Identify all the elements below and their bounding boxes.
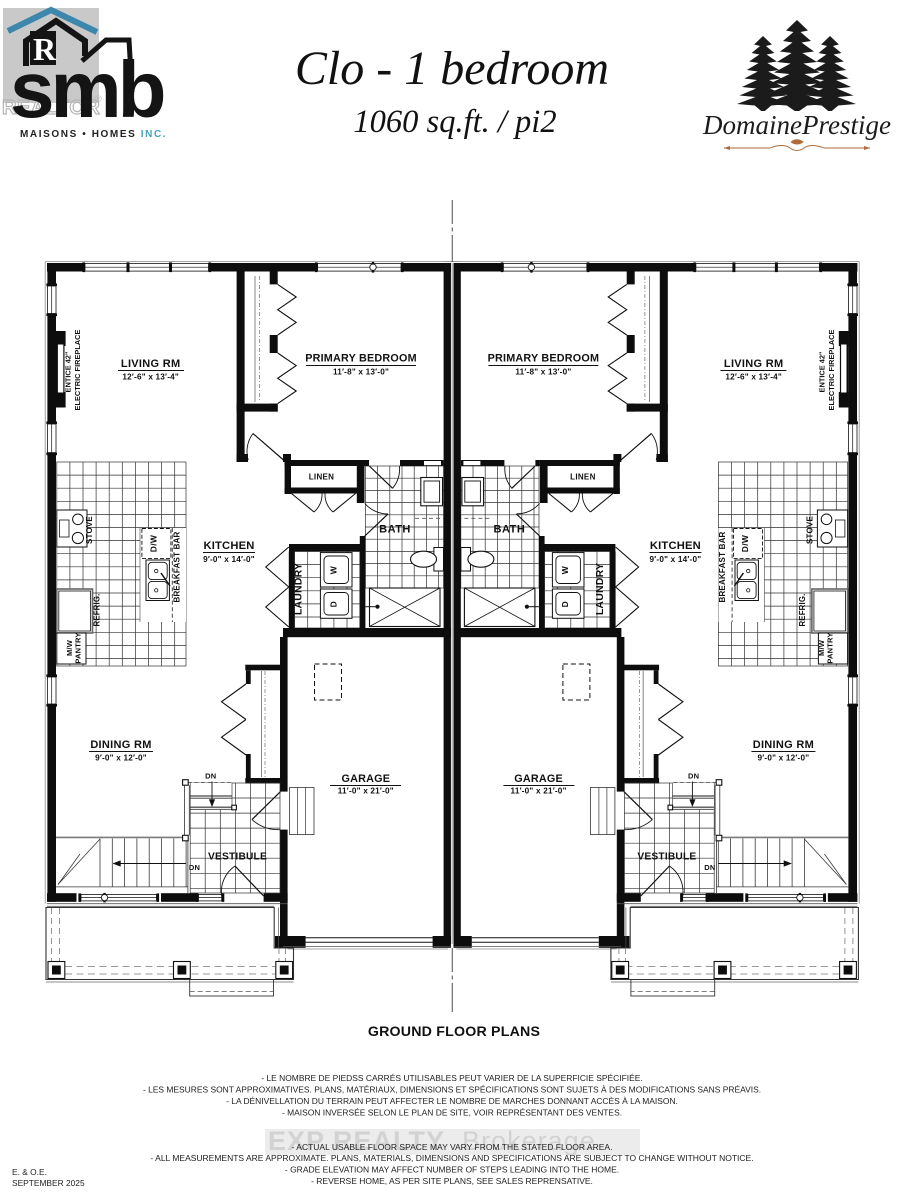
svg-text:MAISONS • HOMES INC.: MAISONS • HOMES INC. — [20, 129, 167, 140]
svg-text:DINING RM: DINING RM — [753, 739, 814, 751]
svg-text:11′-0" x 21′-0": 11′-0" x 21′-0" — [511, 787, 567, 796]
svg-text:D/W: D/W — [740, 534, 750, 552]
svg-text:STOVE: STOVE — [85, 516, 94, 544]
svg-text:- ACTUAL USABLE FLOOR SPACE MA: - ACTUAL USABLE FLOOR SPACE MAY VARY FRO… — [292, 1142, 613, 1152]
svg-text:11′-0" x 21′-0": 11′-0" x 21′-0" — [338, 787, 394, 796]
svg-text:KITCHEN: KITCHEN — [203, 540, 254, 552]
svg-text:9′-0" x 12′-0": 9′-0" x 12′-0" — [95, 754, 147, 763]
svg-text:VESTIBULE: VESTIBULE — [637, 852, 696, 863]
svg-text:VESTIBULE: VESTIBULE — [208, 852, 267, 863]
svg-text:GARAGE: GARAGE — [342, 773, 391, 785]
svg-text:DINING RM: DINING RM — [90, 739, 151, 751]
svg-text:- LES MESURES SONT APPROXIMATI: - LES MESURES SONT APPROXIMATIVES. PLANS… — [143, 1085, 761, 1095]
svg-text:LINEN: LINEN — [309, 473, 335, 482]
svg-text:BREAKFAST BAR: BREAKFAST BAR — [173, 531, 182, 602]
svg-text:KITCHEN: KITCHEN — [650, 540, 701, 552]
svg-text:REFRIG.: REFRIG. — [93, 593, 102, 626]
svg-text:LINEN: LINEN — [570, 473, 596, 482]
svg-text:STOVE: STOVE — [805, 516, 814, 544]
svg-text:GROUND FLOOR PLANS: GROUND FLOOR PLANS — [368, 1024, 540, 1040]
svg-text:9′-0" x 14′-0": 9′-0" x 14′-0" — [649, 555, 701, 564]
svg-text:PRIMARY BEDROOM: PRIMARY BEDROOM — [305, 353, 417, 365]
svg-text:DN: DN — [205, 772, 216, 781]
svg-text:DN: DN — [189, 863, 200, 872]
svg-text:D: D — [329, 601, 339, 608]
svg-text:GARAGE: GARAGE — [514, 773, 563, 785]
svg-text:D: D — [560, 601, 570, 608]
svg-text:LIVING RM: LIVING RM — [121, 358, 181, 370]
svg-text:PANTRY: PANTRY — [825, 632, 834, 663]
svg-text:smb: smb — [10, 45, 164, 134]
svg-text:SEPTEMBER 2025: SEPTEMBER 2025 — [12, 1178, 85, 1188]
svg-text:LAUNDRY: LAUNDRY — [594, 563, 606, 615]
svg-text:LAUNDRY: LAUNDRY — [293, 563, 305, 615]
svg-text:W: W — [329, 565, 339, 574]
svg-text:1060 sq.ft. / pi2: 1060 sq.ft. / pi2 — [353, 104, 556, 140]
svg-text:DomainePrestige: DomainePrestige — [702, 110, 891, 140]
svg-text:11′-8" x 13′-0": 11′-8" x 13′-0" — [333, 368, 389, 377]
svg-text:- ALL MEASUREMENTS ARE APPROXI: - ALL MEASUREMENTS ARE APPROXIMATE. PLAN… — [150, 1153, 753, 1163]
svg-text:ENTICE 42": ENTICE 42" — [817, 351, 826, 392]
svg-text:ENTICE 42": ENTICE 42" — [64, 351, 73, 392]
svg-text:9′-0" x 12′-0": 9′-0" x 12′-0" — [757, 754, 809, 763]
svg-text:W: W — [560, 565, 570, 574]
svg-text:LIVING RM: LIVING RM — [724, 358, 784, 370]
svg-text:ELECTRIC FIREPLACE: ELECTRIC FIREPLACE — [827, 329, 836, 410]
svg-text:9′-0" x 14′-0": 9′-0" x 14′-0" — [203, 555, 255, 564]
svg-text:REFRIG.: REFRIG. — [798, 593, 807, 626]
svg-text:12′-6" x 13′-4": 12′-6" x 13′-4" — [122, 373, 179, 382]
svg-text:- LA DÉNIVELLATION DU TERRAIN: - LA DÉNIVELLATION DU TERRAIN PEUT AFFEC… — [226, 1096, 678, 1106]
svg-text:D/W: D/W — [149, 534, 159, 552]
svg-text:DN: DN — [704, 863, 715, 872]
svg-text:- LE NOMBRE DE PIEDSS CARRÉS U: - LE NOMBRE DE PIEDSS CARRÉS UTILISABLES… — [261, 1073, 642, 1083]
svg-text:- REVERSE HOME, AS PER SITE PL: - REVERSE HOME, AS PER SITE PLANS, SEE S… — [311, 1176, 593, 1186]
svg-text:DN: DN — [688, 772, 699, 781]
svg-text:- GRADE ELEVATION MAY AFFECT N: - GRADE ELEVATION MAY AFFECT NUMBER OF S… — [285, 1165, 619, 1175]
svg-text:PRIMARY BEDROOM: PRIMARY BEDROOM — [488, 353, 600, 365]
svg-text:Clo - 1 bedroom: Clo - 1 bedroom — [295, 42, 609, 95]
svg-text:E. & O.E.: E. & O.E. — [12, 1167, 47, 1177]
svg-text:ELECTRIC FIREPLACE: ELECTRIC FIREPLACE — [73, 329, 82, 410]
svg-text:PANTRY: PANTRY — [74, 632, 83, 663]
svg-text:- MAISON INVERSÉE SELON LE PLA: - MAISON INVERSÉE SELON LE PLAN DE SITE,… — [282, 1108, 622, 1118]
svg-text:BATH: BATH — [379, 524, 411, 536]
svg-text:BREAKFAST BAR: BREAKFAST BAR — [718, 531, 727, 602]
svg-text:11′-8" x 13′-0": 11′-8" x 13′-0" — [515, 368, 571, 377]
svg-text:12′-6" x 13′-4": 12′-6" x 13′-4" — [725, 373, 782, 382]
svg-text:BATH: BATH — [494, 524, 526, 536]
